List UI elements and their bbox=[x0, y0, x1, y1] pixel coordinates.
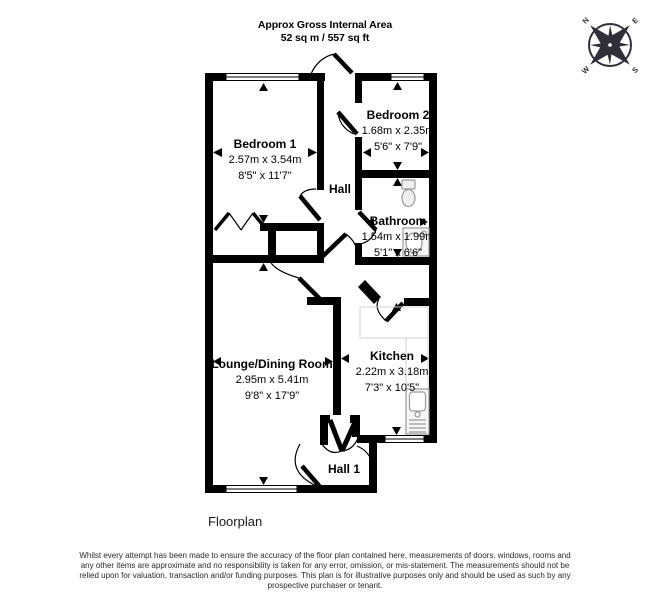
bedroom2-imperial: 5'6" x 7'9" bbox=[362, 139, 435, 155]
kitchen-name: Kitchen bbox=[356, 348, 429, 364]
wall-top-bedroom1-left bbox=[205, 73, 226, 81]
wall-lounge-top bbox=[205, 255, 324, 263]
door-wardrobe-left bbox=[215, 213, 241, 230]
bedroom2-metric: 1.68m x 2.35m bbox=[362, 123, 435, 139]
door-hall1-lounge bbox=[295, 444, 321, 488]
bedroom1-imperial: 8'5" x 11'7" bbox=[229, 168, 302, 184]
room-label-hall1: Hall 1 bbox=[328, 462, 360, 476]
wall-top-bedroom1-right bbox=[299, 73, 325, 81]
window-lounge bbox=[226, 486, 297, 493]
arrow-kitchen-left bbox=[341, 354, 349, 363]
wall-bottom-right bbox=[297, 485, 377, 493]
bathroom-metric: 1.54m x 1.99m bbox=[362, 229, 435, 245]
lounge-name: Lounge/Dining Room bbox=[211, 356, 332, 372]
wall-bedroom1-bottom bbox=[260, 223, 324, 231]
compass-letter-s: S bbox=[630, 65, 640, 75]
bathroom-imperial: 5'1" x 6'6" bbox=[362, 245, 435, 261]
area-header-line2: 52 sq m / 557 sq ft bbox=[258, 32, 392, 45]
room-label-kitchen: Kitchen 2.22m x 3.18m 7'3" x 10'5" bbox=[356, 348, 429, 396]
wall-entrance-left bbox=[320, 415, 328, 445]
wall-lounge-kitchen bbox=[333, 297, 341, 415]
disclaimer-line-1: Whilst every attempt has been made to en… bbox=[5, 551, 645, 561]
disclaimer-line-3: relied upon for valuation, transaction a… bbox=[5, 571, 645, 581]
room-label-lounge: Lounge/Dining Room 2.95m x 5.41m 9'8" x … bbox=[211, 356, 332, 404]
door-lounge bbox=[271, 263, 321, 300]
bedroom1-name: Bedroom 1 bbox=[229, 136, 302, 152]
kitchen-metric: 2.22m x 3.18m bbox=[356, 364, 429, 380]
arrow-bedroom2-down bbox=[393, 162, 402, 170]
wall-bedroom2-left-upper bbox=[355, 81, 362, 103]
door-hall2-top bbox=[311, 54, 352, 74]
disclaimer-text: Whilst every attempt has been made to en… bbox=[5, 551, 645, 591]
wall-top-bedroom2-left bbox=[355, 73, 391, 81]
disclaimer-line-2: any other items are approximate and no r… bbox=[5, 561, 645, 571]
window-kitchen bbox=[385, 436, 424, 443]
kitchen-imperial: 7'3" x 10'5" bbox=[356, 380, 429, 396]
door-bedroom2 bbox=[338, 112, 357, 134]
door-hall2-junction bbox=[322, 234, 357, 258]
area-header: Approx Gross Internal Area 52 sq m / 557… bbox=[258, 19, 392, 45]
arrow-bedroom1-up bbox=[259, 83, 268, 91]
bathroom-name: Bathroom bbox=[362, 213, 435, 229]
arrow-bedroom1-left bbox=[213, 148, 222, 157]
floorplan-caption: Floorplan bbox=[208, 514, 262, 529]
compass-letter-e: E bbox=[630, 16, 640, 26]
arrow-kitchen-down bbox=[392, 427, 401, 435]
arrow-lounge-down bbox=[259, 477, 268, 485]
wall-hall1-right bbox=[369, 443, 377, 493]
wall-hall-diagonal-stub bbox=[358, 280, 381, 304]
floorplan-drawing: N E S W bbox=[0, 0, 650, 600]
room-label-bedroom1: Bedroom 1 2.57m x 3.54m 8'5" x 11'7" bbox=[229, 136, 302, 184]
wall-bedroom1-right bbox=[317, 81, 324, 190]
area-header-line1: Approx Gross Internal Area bbox=[258, 19, 392, 32]
wall-kitchen-bottom-left bbox=[357, 435, 385, 443]
room-label-hall2: Hall 2 bbox=[329, 182, 361, 196]
bedroom1-metric: 2.57m x 3.54m bbox=[229, 152, 302, 168]
lounge-metric: 2.95m x 5.41m bbox=[211, 372, 332, 388]
wall-bottom-left bbox=[205, 485, 226, 493]
room-label-bedroom2: Bedroom 2 1.68m x 2.35m 5'6" x 7'9" bbox=[362, 107, 435, 155]
wall-bedroom2-bathroom bbox=[355, 170, 437, 178]
compass-letter-w: W bbox=[580, 64, 592, 76]
window-bedroom2 bbox=[391, 74, 424, 81]
arrow-bathroom-up bbox=[393, 178, 402, 186]
arrow-bedroom1-right bbox=[308, 148, 317, 157]
toilet-icon bbox=[402, 180, 415, 207]
compass-rose: N E S W bbox=[555, 0, 650, 101]
arrow-lounge-up bbox=[259, 263, 268, 271]
room-label-bathroom: Bathroom 1.54m x 1.99m 5'1" x 6'6" bbox=[362, 213, 435, 261]
wall-exterior-left bbox=[205, 73, 213, 493]
wall-closet-divider bbox=[268, 231, 276, 255]
bedroom2-name: Bedroom 2 bbox=[362, 107, 435, 123]
disclaimer-line-4: prospective purchaser or tenant. bbox=[5, 581, 645, 591]
lounge-imperial: 9'8" x 17'9" bbox=[211, 388, 332, 404]
compass-letter-n: N bbox=[581, 16, 591, 26]
wall-closet-right bbox=[317, 231, 324, 255]
arrow-bedroom2-up bbox=[393, 82, 402, 90]
window-bedroom1 bbox=[226, 74, 299, 81]
wall-kitchen-top bbox=[404, 298, 437, 306]
door-bedroom1 bbox=[300, 189, 320, 220]
wall-kitchen-bottom-right bbox=[424, 435, 437, 443]
wall-lounge-top-stub bbox=[307, 297, 341, 305]
floorplan-canvas: N E S W Approx Gross Internal Area 52 sq… bbox=[0, 0, 650, 600]
